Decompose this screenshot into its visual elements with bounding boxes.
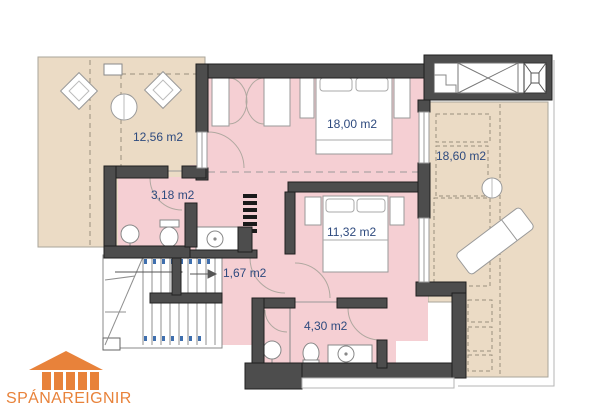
- stair-landing-wall: [150, 293, 222, 303]
- floor-plan: 12,56 m2 18,00 m2 18,60 m2 3,18 m2 11,32…: [0, 0, 600, 418]
- nightstand: [394, 76, 410, 118]
- window-left: [197, 132, 207, 168]
- toilet: [160, 220, 179, 247]
- planter-box: [104, 64, 122, 75]
- elevator: [524, 63, 546, 93]
- room-label-bedroom-main: 18,00 m2: [327, 117, 377, 131]
- slider-bedroom-main: [419, 112, 429, 163]
- stair-core: [434, 63, 546, 93]
- logo-text: SPÁNAREIGNIR: [6, 390, 132, 408]
- terrace-right-region: [428, 60, 554, 386]
- room-label-landing: 1,67 m2: [223, 266, 266, 280]
- room-label-bathroom-second: 4,30 m2: [304, 319, 347, 333]
- staircase: [103, 255, 222, 350]
- stairwell-void: [458, 63, 518, 93]
- lower-step-outline: [302, 378, 454, 388]
- vanity-sink: [328, 345, 372, 364]
- room-label-terrace-left: 12,56 m2: [133, 130, 183, 144]
- room-label-terrace-right: 18,60 m2: [436, 149, 486, 163]
- pedestal-sink: [263, 341, 281, 359]
- logo-roof-icon: [29, 351, 103, 370]
- hall-washbasin: [196, 227, 238, 251]
- slider-bedroom-second: [419, 218, 429, 282]
- room-label-bathroom-small: 3,18 m2: [151, 188, 194, 202]
- bed-main: [316, 74, 392, 154]
- agency-logo: SPÁNAREIGNIR: [0, 345, 190, 415]
- stair-divider-wall: [172, 255, 181, 295]
- logo-columns-icon: [42, 372, 99, 390]
- pedestal-sink: [121, 225, 139, 243]
- wardrobe-right: [264, 76, 290, 126]
- nightstand: [305, 197, 321, 225]
- nightstand: [390, 197, 404, 225]
- nightstand: [300, 76, 314, 118]
- room-label-bedroom-second: 11,32 m2: [327, 225, 376, 239]
- wardrobe-left: [212, 76, 229, 126]
